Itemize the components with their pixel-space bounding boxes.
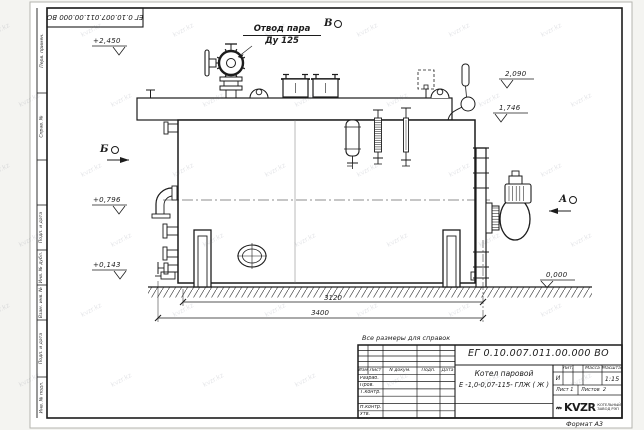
sheet-cell: Лист 1 [556,387,578,393]
margin-label-perv-primen: Перв. примен. [37,8,47,93]
title-designation: ЕГ 0.10.007.011.00.000 ВО [457,348,620,359]
col-data: Дата [440,368,455,373]
row-tkontr: Т.контр. [360,390,381,395]
ground [148,287,592,298]
margin-label-inv-dubl: Инв. № дубл. [37,250,47,285]
dimension-3120: 3120 [313,294,353,302]
boiler-body [178,120,475,283]
row-utv: Утв. [360,412,370,417]
drawing-canvas [0,0,644,430]
view-marker-a: А [559,194,577,205]
row-razrab: Разраб. [360,376,379,381]
kvzr-logo-text: KVZR [564,401,595,414]
company-logo: KVZR КОТЕЛЬНЫЙ ЗАВОД РЭП [556,399,621,415]
view-circle [569,196,577,204]
elevation-1746: 1,746 [499,104,521,112]
mass-label: Масса [583,366,602,371]
margin-label-inv-podl: Инв. № подл. [37,377,47,418]
callout-text: Отвод пара [243,24,321,36]
reference-note: Все размеры для справок [362,334,450,342]
top-stamp-designation: ЕГ 0.10.007.011.00.000 ВО [48,9,142,26]
callout-dn: Ду 125 [243,36,321,46]
lit-value: И [553,375,563,382]
margin-label-podp-data-2: Подп. и дата [37,320,47,377]
lit-label: Лит. [553,366,583,371]
scale-value: 1:15 [602,375,622,383]
dimension-3400: 3400 [300,309,340,317]
col-doc: N докум. [383,368,417,373]
col-podp: Подп. [417,368,440,373]
drawing-sheet: ЕГ 0.10.007.011.00.000 ВО Перв. примен. … [0,0,644,430]
row-prov: Пров. [360,383,374,388]
margin-label-sprav-no: Справ. № [37,93,47,160]
steam-outlet-callout: Отвод пара Ду 125 [243,24,321,46]
product-name: Котел паровой [457,369,551,378]
col-izm: Изм [358,368,368,373]
elevation-0143: +0,143 [93,261,121,269]
product-type: Е -1,0-0,07-115- ГЛЖ ( Ж ) [456,381,552,389]
view-marker-v: В [324,18,342,29]
col-list: Лист [368,368,383,373]
elevation-0000: 0,000 [546,271,568,279]
row-nkontr: Н.контр. [360,405,381,410]
scale-label: Масштаб [602,366,622,371]
company-name: КОТЕЛЬНЫЙ ЗАВОД РЭП [597,403,621,411]
elevation-2450: +2,450 [93,37,121,45]
margin-label-podp-data-1: Подп. и дата [37,205,47,250]
elevation-2090: 2,090 [505,70,527,78]
view-circle [111,146,119,154]
view-marker-b: Б [100,144,119,155]
margin-label-vzam-inv: Взам. инв. № [37,285,47,320]
elevation-0796: +0,796 [93,196,121,204]
view-circle [334,20,342,28]
kvzr-spring-icon [556,401,562,414]
format-label: Формат А3 [566,420,603,428]
boiler-top-casing [137,98,452,120]
sheets-cell: Листов 2 [581,387,621,393]
